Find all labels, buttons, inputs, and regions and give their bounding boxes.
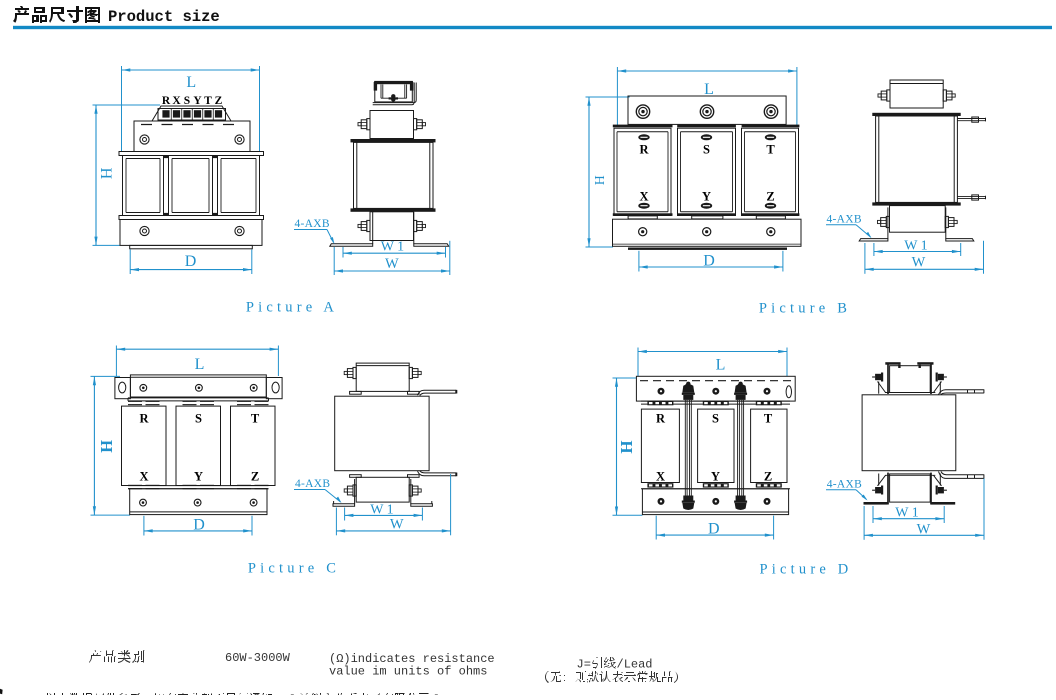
svg-text:S: S — [184, 95, 190, 107]
svg-text:T: T — [251, 412, 260, 426]
svg-text:4-AXB: 4-AXB — [295, 478, 330, 490]
svg-text:W: W — [917, 521, 931, 537]
svg-text:R: R — [656, 412, 666, 426]
svg-text:W: W — [912, 255, 926, 271]
svg-text:Y: Y — [702, 190, 711, 204]
svg-text:Y: Y — [193, 95, 202, 107]
svg-text:T: T — [204, 95, 212, 107]
svg-text:Y: Y — [711, 470, 720, 484]
svg-text:D: D — [703, 253, 715, 270]
svg-text:Z: Z — [766, 190, 774, 204]
svg-text:Z: Z — [215, 95, 223, 107]
svg-text:T: T — [764, 412, 773, 426]
svg-text:60W-3000W: 60W-3000W — [225, 651, 291, 665]
svg-text:H: H — [99, 167, 116, 179]
svg-text:Z: Z — [251, 470, 259, 484]
svg-text:L: L — [704, 81, 714, 98]
svg-text:4-AXB: 4-AXB — [827, 214, 862, 226]
svg-text:L: L — [716, 357, 726, 374]
svg-text:4-AXB: 4-AXB — [295, 218, 330, 230]
svg-text:X: X — [656, 470, 665, 484]
svg-text:S: S — [712, 412, 719, 426]
svg-text:R: R — [162, 95, 171, 107]
svg-text:L: L — [186, 74, 196, 91]
svg-text:Picture D: Picture D — [760, 562, 853, 578]
svg-text:W: W — [390, 516, 404, 532]
svg-text:Picture C: Picture C — [248, 561, 340, 577]
svg-text:Picture A: Picture A — [246, 300, 338, 316]
svg-text:D: D — [185, 253, 197, 270]
svg-text:X: X — [172, 95, 181, 107]
svg-text:D: D — [193, 517, 205, 534]
svg-text:T: T — [766, 143, 775, 157]
svg-text:H: H — [617, 440, 636, 453]
svg-text:H: H — [97, 440, 116, 453]
svg-text:Y: Y — [194, 470, 203, 484]
svg-text:/Lead: /Lead — [617, 658, 653, 672]
svg-text:W1: W1 — [904, 239, 931, 254]
svg-text:W1: W1 — [895, 506, 922, 521]
svg-text:W: W — [385, 256, 399, 272]
svg-text:Picture B: Picture B — [759, 301, 851, 317]
svg-text:D: D — [708, 521, 720, 538]
svg-text:value im units of ohms: value im units of ohms — [329, 665, 487, 679]
svg-text:X: X — [639, 190, 648, 204]
svg-text:W1: W1 — [370, 502, 397, 517]
svg-text:X: X — [139, 470, 148, 484]
svg-text:L: L — [195, 356, 205, 373]
svg-text:S: S — [703, 143, 710, 157]
svg-text:J=: J= — [577, 658, 591, 672]
svg-text:Z: Z — [764, 470, 772, 484]
svg-text:W1: W1 — [381, 240, 408, 255]
svg-text:R: R — [639, 143, 649, 157]
svg-text:4-AXB: 4-AXB — [827, 479, 862, 491]
svg-text:H: H — [592, 175, 607, 185]
svg-text:S: S — [195, 412, 202, 426]
svg-text:R: R — [139, 412, 149, 426]
svg-text:Product size: Product size — [108, 8, 220, 26]
